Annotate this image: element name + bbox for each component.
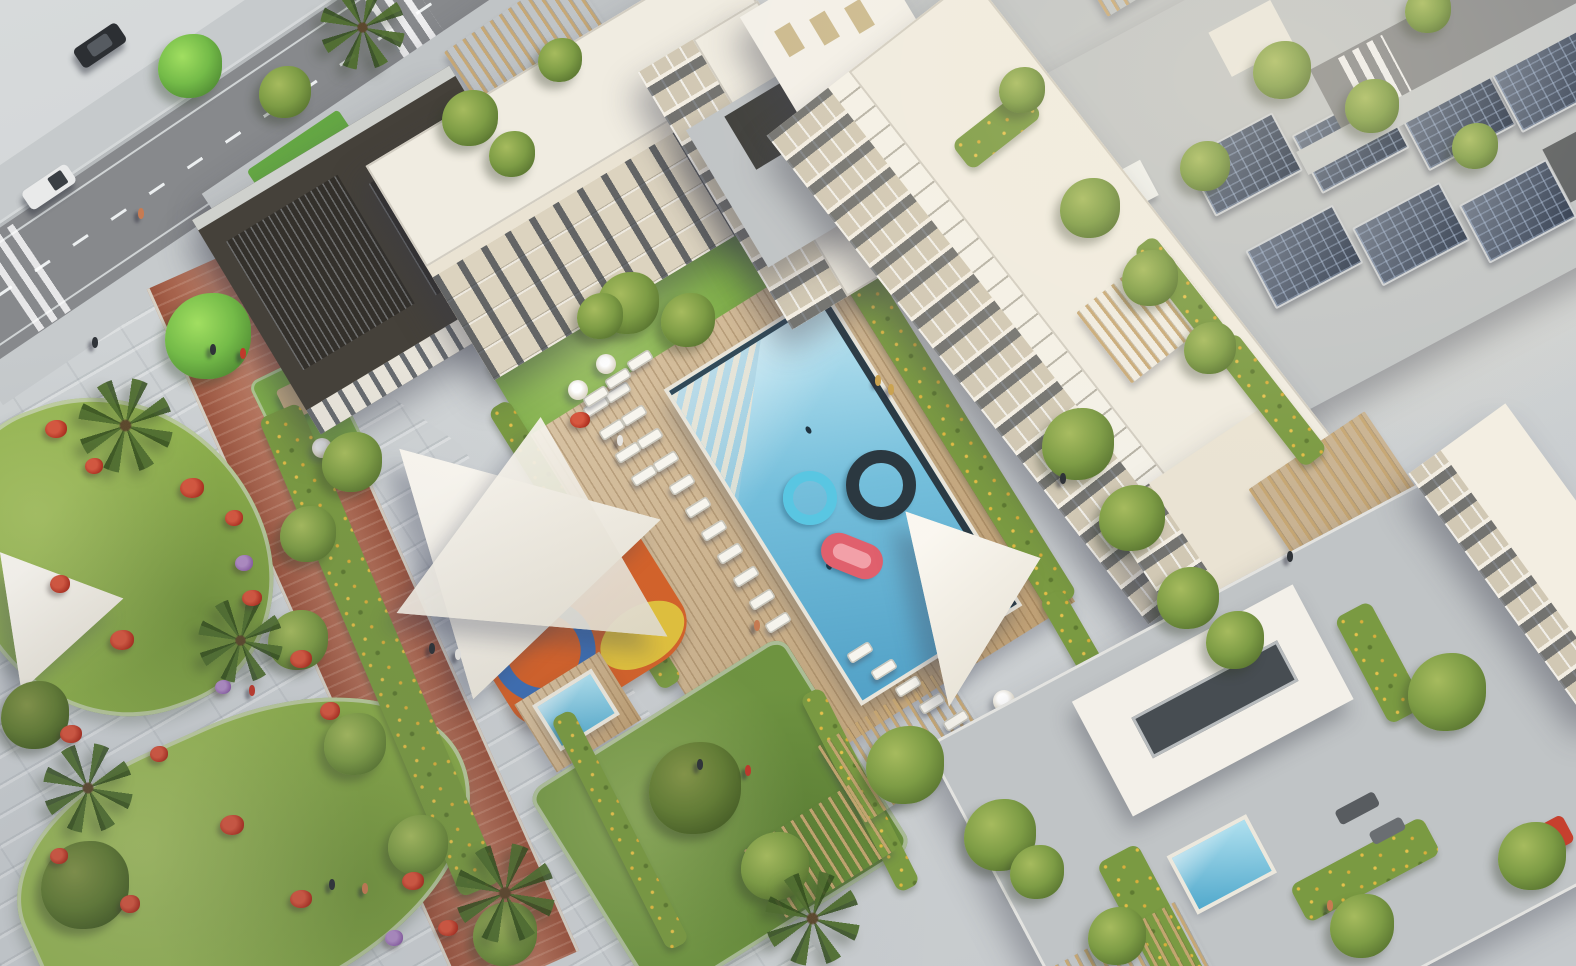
tree: [577, 293, 623, 339]
person: [329, 879, 335, 890]
palm-tree: [455, 843, 555, 943]
flower-shrub: [60, 725, 82, 743]
flower-shrub: [50, 575, 70, 593]
person: [875, 375, 881, 386]
door-panel: [774, 22, 805, 57]
tree: [1498, 822, 1566, 890]
person: [455, 649, 461, 660]
tree: [388, 815, 448, 875]
car-cab: [47, 170, 69, 191]
tree: [324, 713, 386, 775]
shade-sail: [388, 410, 676, 646]
tree: [259, 66, 311, 118]
pool-float-ring: [783, 471, 837, 525]
person: [617, 435, 623, 446]
shade-sail: [898, 503, 1048, 715]
shade-sail: [0, 543, 134, 697]
tree: [442, 90, 498, 146]
tree: [1099, 485, 1165, 551]
tree: [1088, 907, 1146, 965]
person: [429, 643, 435, 654]
door-panel: [844, 0, 875, 34]
palm-tree: [43, 743, 133, 833]
flower-shrub: [290, 650, 312, 668]
palm-tree: [765, 871, 860, 966]
solar-panel-array: [1352, 182, 1470, 287]
tree: [280, 506, 336, 562]
tree: [999, 67, 1045, 113]
tree: [538, 38, 582, 82]
tree: [1, 681, 69, 749]
flower-shrub: [402, 872, 424, 890]
swimmer: [804, 425, 812, 434]
flower-planter: [570, 412, 590, 428]
parasol: [568, 380, 588, 400]
tree: [1042, 408, 1114, 480]
sail-fabric: [388, 410, 676, 646]
sail-fabric: [0, 543, 134, 697]
tree: [1010, 845, 1064, 899]
flower-shrub: [242, 590, 262, 606]
person: [1327, 900, 1333, 911]
flower-shrub-purple: [215, 680, 231, 694]
flower-shrub: [110, 630, 134, 650]
flower-shrub: [150, 746, 168, 762]
door-panel: [809, 11, 840, 46]
boat-interior: [830, 541, 873, 571]
person: [249, 685, 255, 696]
person: [1287, 551, 1293, 562]
tree: [661, 293, 715, 347]
tree: [1157, 567, 1219, 629]
sail-fabric: [898, 503, 1048, 715]
car-windshield: [86, 33, 114, 58]
person: [138, 208, 144, 219]
tree: [1253, 41, 1311, 99]
tree: [165, 293, 251, 379]
flower-shrub: [220, 815, 244, 835]
tree: [322, 432, 382, 492]
person: [92, 337, 98, 348]
flower-shrub: [438, 920, 458, 936]
solar-panel-array: [1245, 205, 1363, 310]
white-roof-volume: [1072, 584, 1354, 816]
tree: [1122, 250, 1178, 306]
person: [240, 348, 246, 359]
person: [754, 620, 760, 631]
outdoor-sofa: [1334, 791, 1380, 826]
person: [210, 344, 216, 355]
tree: [866, 726, 944, 804]
tree: [1206, 611, 1264, 669]
flower-shrub: [225, 510, 243, 526]
tree: [1408, 653, 1486, 731]
tree: [1180, 141, 1230, 191]
aerial-render: [0, 0, 1576, 966]
flower-shrub: [85, 458, 103, 474]
flower-shrub: [45, 420, 67, 438]
tree: [1060, 178, 1120, 238]
person: [697, 759, 703, 770]
person: [745, 765, 751, 776]
car: [72, 21, 128, 69]
flower-shrub: [180, 478, 204, 498]
flower-shrub: [290, 890, 312, 908]
person: [362, 883, 368, 894]
tree: [1452, 123, 1498, 169]
flower-shrub: [320, 702, 340, 720]
tree: [1345, 79, 1399, 133]
tree: [1330, 894, 1394, 958]
palm-tree: [198, 598, 283, 683]
plunge-pool: [1172, 820, 1272, 910]
flower-shrub: [50, 848, 68, 864]
flower-shrub-purple: [235, 555, 253, 571]
tree: [489, 131, 535, 177]
person: [1060, 473, 1066, 484]
flower-shrub: [120, 895, 140, 913]
person: [888, 384, 894, 395]
tree: [158, 34, 222, 98]
parasol: [596, 354, 616, 374]
tree: [649, 742, 741, 834]
tree: [1184, 322, 1236, 374]
flower-shrub-purple: [385, 930, 403, 946]
